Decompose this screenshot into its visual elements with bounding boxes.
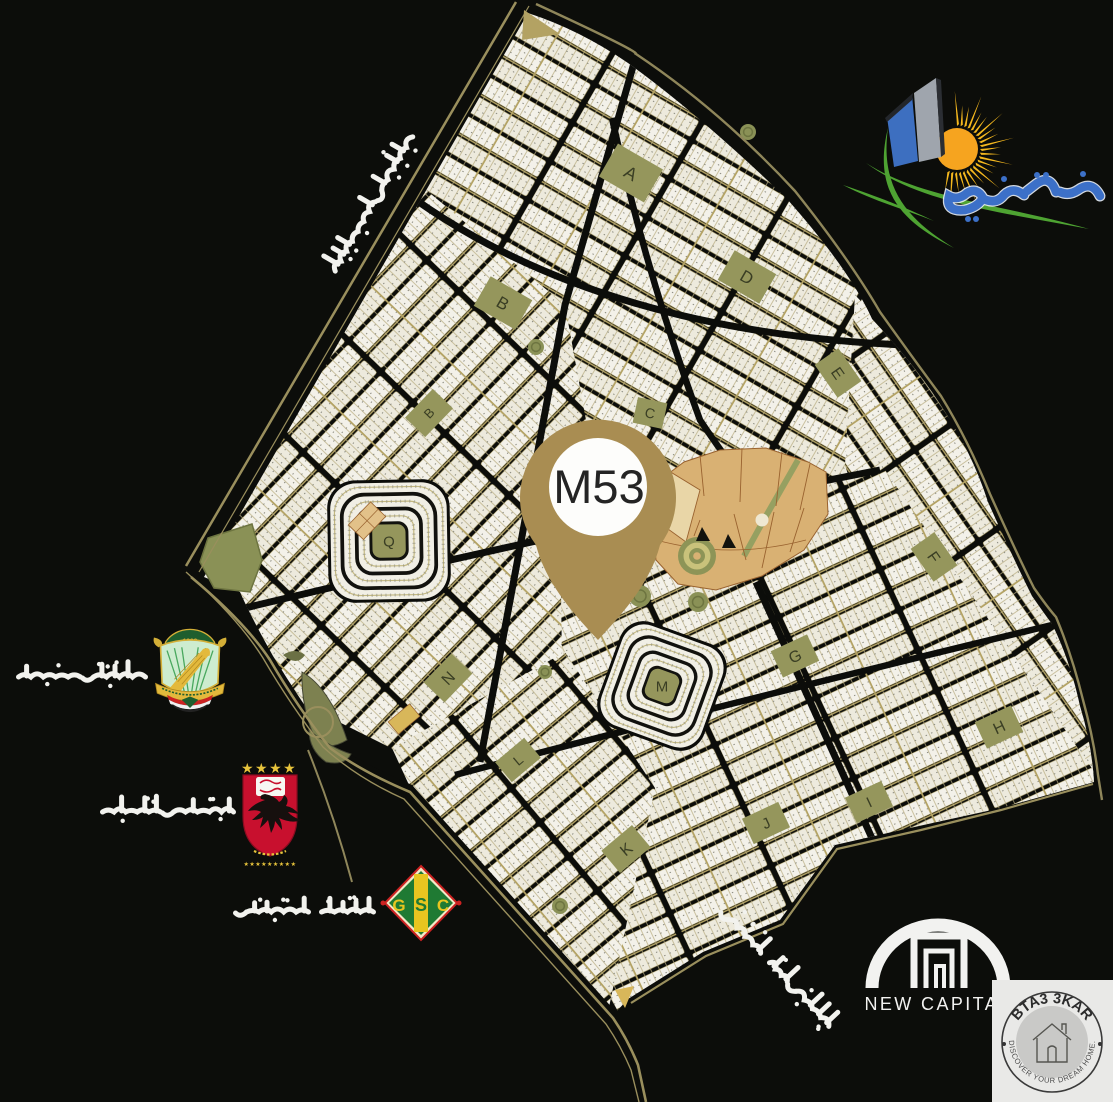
svg-text:★★★★★★★★★: ★★★★★★★★★ <box>244 861 297 868</box>
svg-text:NEW CAPITAL: NEW CAPITAL <box>864 994 1011 1014</box>
svg-text:★★★★: ★★★★ <box>241 760 297 776</box>
svg-text:M53: M53 <box>553 460 644 513</box>
svg-text:Q: Q <box>383 534 395 551</box>
svg-text:G: G <box>392 896 405 915</box>
svg-text:M: M <box>656 679 669 696</box>
svg-text:C: C <box>437 896 449 915</box>
svg-text:S: S <box>415 895 427 915</box>
